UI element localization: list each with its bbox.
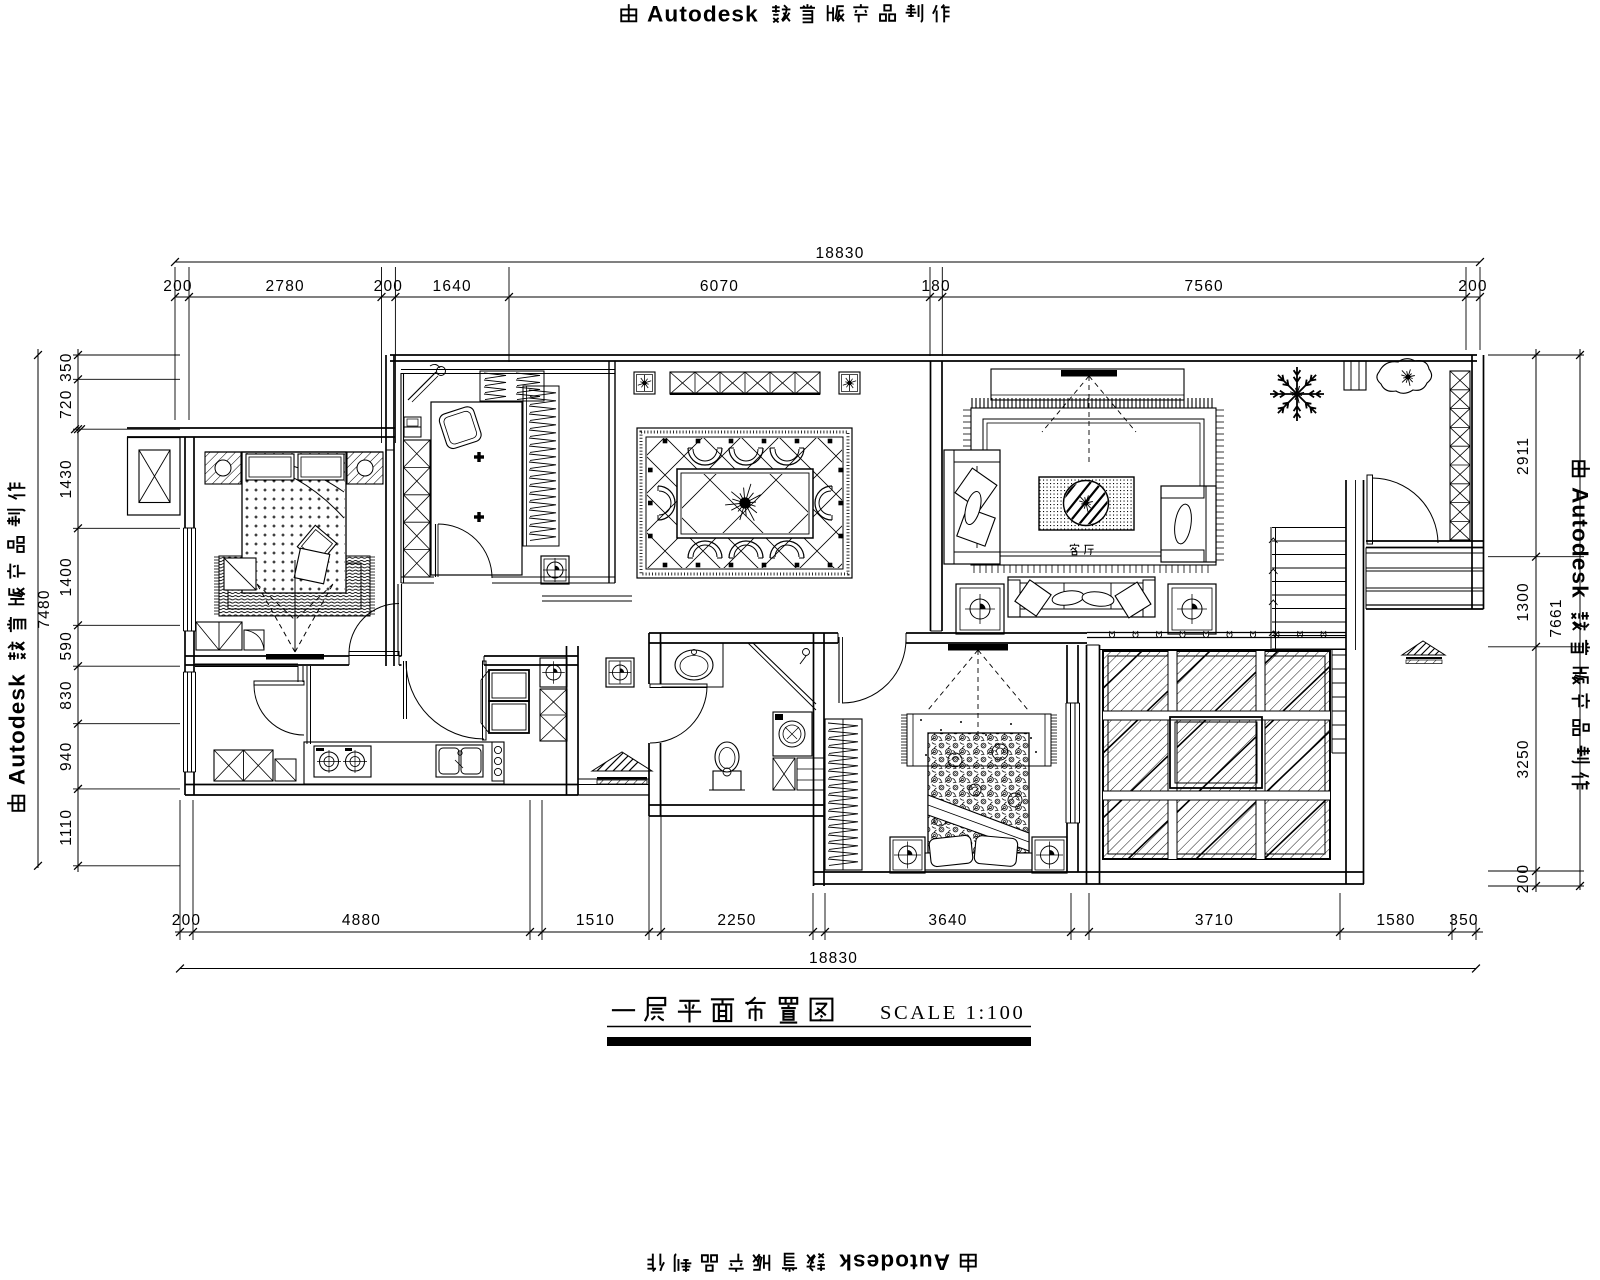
svg-text:18830: 18830	[809, 950, 858, 967]
svg-text:830: 830	[58, 680, 75, 709]
svg-text:2250: 2250	[717, 912, 756, 929]
svg-text:350: 350	[58, 352, 75, 381]
svg-text:Autodesk: Autodesk	[1568, 487, 1593, 599]
svg-text:3640: 3640	[928, 912, 967, 929]
svg-text:720: 720	[58, 389, 75, 418]
svg-text:1300: 1300	[1515, 582, 1532, 621]
svg-text:7480: 7480	[36, 589, 53, 628]
svg-text:3710: 3710	[1195, 912, 1234, 929]
svg-text:Autodesk: Autodesk	[5, 673, 30, 785]
svg-text:1640: 1640	[433, 278, 472, 295]
svg-text:1510: 1510	[576, 912, 615, 929]
svg-text:200: 200	[172, 912, 201, 929]
svg-text:590: 590	[58, 631, 75, 660]
svg-text:350: 350	[1449, 912, 1478, 929]
svg-text:SCALE 1:100: SCALE 1:100	[880, 1002, 1025, 1024]
svg-text:2780: 2780	[266, 278, 305, 295]
svg-text:Autodesk: Autodesk	[647, 2, 759, 27]
svg-text:7661: 7661	[1548, 598, 1565, 637]
svg-text:200: 200	[1515, 864, 1532, 893]
svg-text:7560: 7560	[1185, 278, 1224, 295]
svg-text:Autodesk: Autodesk	[838, 1250, 950, 1275]
svg-text:180: 180	[921, 278, 950, 295]
svg-text:1110: 1110	[58, 809, 75, 846]
svg-text:18830: 18830	[815, 245, 864, 262]
svg-text:200: 200	[374, 278, 403, 295]
svg-text:4880: 4880	[342, 912, 381, 929]
svg-text:1400: 1400	[58, 557, 75, 596]
svg-text:200: 200	[163, 278, 192, 295]
svg-text:1580: 1580	[1376, 912, 1415, 929]
svg-text:3250: 3250	[1515, 739, 1532, 778]
svg-text:2911: 2911	[1515, 437, 1532, 475]
svg-text:1430: 1430	[58, 459, 75, 498]
svg-text:200: 200	[1458, 278, 1487, 295]
svg-text:940: 940	[58, 742, 75, 771]
svg-text:6070: 6070	[700, 278, 739, 295]
